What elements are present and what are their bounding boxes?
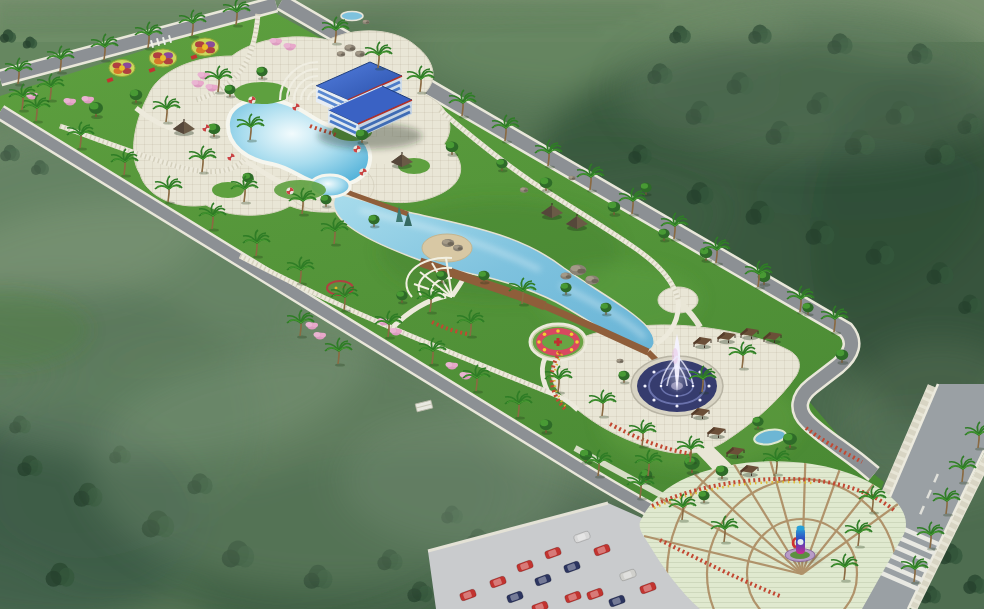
rock-cluster bbox=[337, 51, 345, 56]
flower-parterre bbox=[149, 49, 176, 67]
flower-circle bbox=[532, 326, 584, 358]
rendering-canvas bbox=[0, 0, 984, 609]
flower-parterre bbox=[109, 60, 135, 77]
rock-cluster bbox=[570, 265, 587, 276]
pool-umbrella bbox=[227, 153, 234, 160]
park-aerial-rendering bbox=[0, 0, 984, 609]
rock-cluster bbox=[344, 44, 355, 51]
rock-cluster bbox=[585, 276, 599, 285]
pool-umbrella bbox=[292, 103, 299, 110]
rock-cluster bbox=[442, 239, 455, 247]
rock-cluster bbox=[363, 20, 370, 25]
rock-cluster bbox=[520, 187, 528, 192]
pool-umbrella bbox=[359, 168, 366, 175]
rock-cluster bbox=[617, 359, 624, 364]
rock-cluster bbox=[355, 51, 365, 57]
rock-cluster bbox=[569, 176, 576, 181]
pool-umbrella bbox=[248, 96, 255, 103]
rock-cluster bbox=[560, 272, 571, 279]
pool-umbrella bbox=[353, 145, 360, 152]
flower-parterre bbox=[191, 38, 218, 56]
rock-garden-pond bbox=[341, 12, 363, 21]
pool-umbrella bbox=[286, 187, 293, 194]
rock-cluster bbox=[453, 245, 463, 251]
pool-umbrella bbox=[202, 124, 209, 131]
